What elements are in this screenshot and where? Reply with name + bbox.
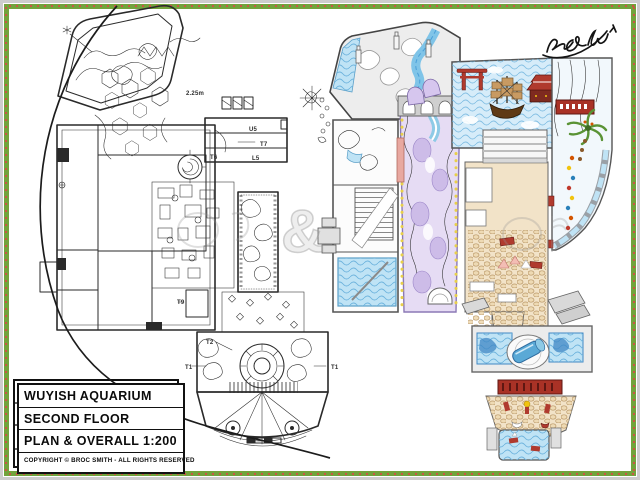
side-tank-west	[477, 333, 512, 364]
scale-line: PLAN & OVERALL 1:200	[19, 430, 183, 453]
bottom-fan-plaza	[197, 392, 328, 446]
title-block: WUYISH AQUARIUM SECOND FLOOR PLAN & OVER…	[17, 383, 185, 474]
starburst-mark	[300, 86, 324, 110]
tank-room-t7	[138, 38, 287, 162]
copyright-line: COPYRIGHT © BROC SMITH - ALL RIGHTS RESE…	[19, 453, 183, 468]
right-plan-drawing	[318, 22, 612, 460]
hex-terrace	[95, 68, 168, 159]
waterfall-spine	[398, 77, 460, 312]
tank-cluster	[152, 182, 234, 288]
sheet-title: SECOND FLOOR	[19, 408, 183, 430]
chinese-gate-building	[498, 378, 562, 394]
stepping-stones	[318, 98, 330, 142]
circular-ramp-hall	[192, 332, 328, 393]
wedge-exhibit	[58, 6, 183, 110]
south-pool	[499, 430, 549, 460]
tunnel-tank-cylinder	[507, 335, 549, 369]
entrance-sign	[556, 100, 594, 114]
artist-signature	[543, 25, 616, 58]
project-title: WUYISH AQUARIUM	[19, 385, 183, 408]
main-building	[40, 125, 226, 330]
west-gallery-rooms	[318, 120, 404, 312]
side-tank-east	[549, 333, 583, 362]
mosaic-corridor	[178, 290, 304, 332]
rock-river-strip	[238, 192, 278, 292]
drawing-sheet: & 2.25mU5T7T6L5T9T2T1T1 WUYISH AQUARIUM …	[0, 0, 640, 480]
dive-pool	[338, 258, 396, 306]
